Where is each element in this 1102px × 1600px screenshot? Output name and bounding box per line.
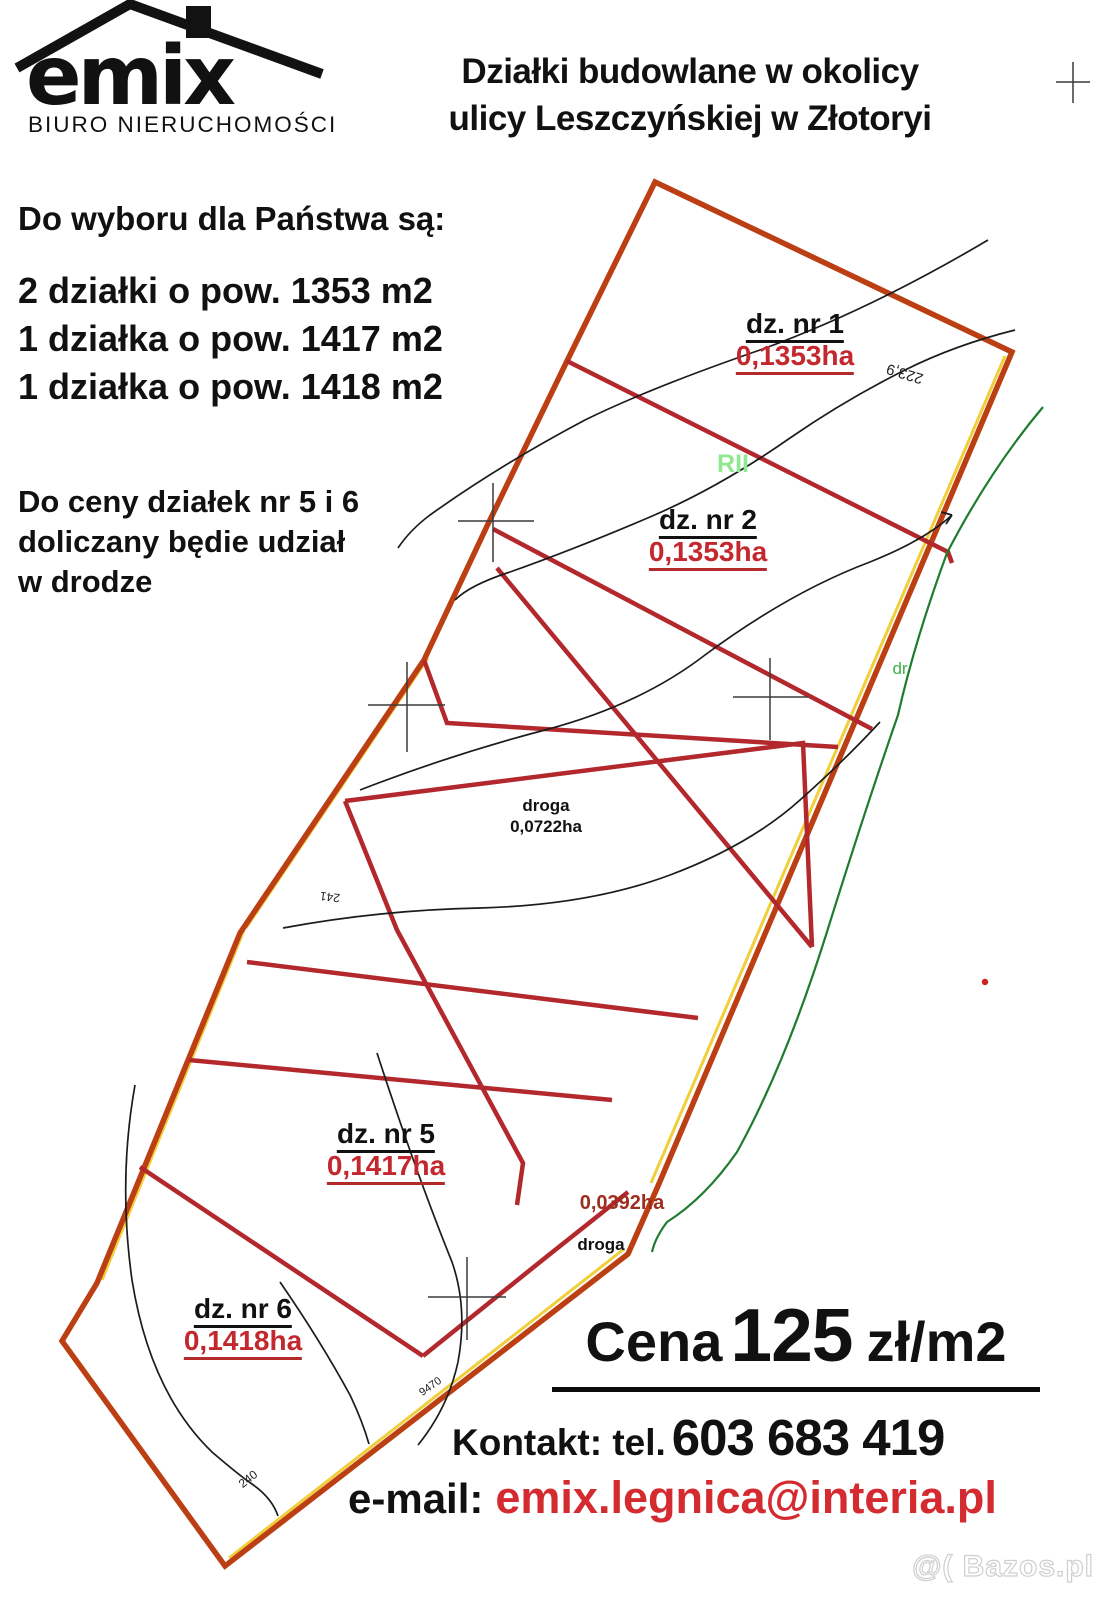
logo-subtitle: BIURO NIERUCHOMOŚCI xyxy=(28,112,337,138)
flyer-page: RII dr 223,9 241 240 9470 emix BIURO NIE… xyxy=(0,0,1102,1600)
elevation-9470-label: 9470 xyxy=(417,1375,444,1399)
page-title-line1: Działki budowlane w okolicy xyxy=(400,48,980,95)
offer-item-3: 1 działka o pow. 1418 m2 xyxy=(18,366,443,408)
parcel-6-area: 0,1418ha xyxy=(184,1325,302,1360)
road-share-note-line2: doliczany będie udział xyxy=(18,522,359,562)
elevation-241-label: 241 xyxy=(319,889,341,905)
price-line: Cena 125 zł/m2 xyxy=(552,1292,1040,1392)
road-share-note-line3: w drodze xyxy=(18,562,359,602)
parcel-1-area: 0,1353ha xyxy=(736,340,854,375)
parcel-5-id: dz. nr 5 xyxy=(337,1118,435,1153)
price-unit: zł/m2 xyxy=(867,1309,1007,1374)
road-small-name: droga xyxy=(577,1234,624,1255)
parcel-5-area: 0,1417ha xyxy=(327,1150,445,1185)
watermark: @( Bazos.pl xyxy=(912,1550,1094,1584)
road-share-note: Do ceny działek nr 5 i 6 doliczany będie… xyxy=(18,482,359,602)
road-main-label: droga 0,0722ha xyxy=(510,795,582,837)
email-prefix: e-mail: xyxy=(348,1475,483,1523)
road-small-area: 0,0392ha xyxy=(580,1192,665,1215)
parcel-5-label: dz. nr 5 0,1417ha xyxy=(327,1118,445,1182)
road-share-note-line1: Do ceny działek nr 5 i 6 xyxy=(18,482,359,522)
price-prefix: Cena xyxy=(585,1309,722,1374)
survey-cross-marks xyxy=(368,62,1090,1340)
offer-intro: Do wyboru dla Państwa są: xyxy=(18,200,445,238)
land-class-label: RII xyxy=(717,450,749,478)
red-dot-mark xyxy=(982,979,988,985)
parcel-2-label: dz. nr 2 0,1353ha xyxy=(649,504,767,568)
offer-item-2: 1 działka o pow. 1417 m2 xyxy=(18,318,443,360)
page-title: Działki budowlane w okolicy ulicy Leszcz… xyxy=(400,48,980,142)
offer-item-1: 2 działki o pow. 1353 m2 xyxy=(18,270,433,312)
parcel-6-label: dz. nr 6 0,1418ha xyxy=(184,1293,302,1357)
logo-name: emix xyxy=(26,36,232,118)
green-road-label: dr xyxy=(892,659,907,678)
page-title-line2: ulicy Leszczyńskiej w Złotoryi xyxy=(400,95,980,142)
parcel-2-id: dz. nr 2 xyxy=(659,504,757,539)
email-line: e-mail: emix.legnica@interia.pl xyxy=(348,1472,997,1524)
price-value: 125 xyxy=(730,1292,852,1378)
road-main-name: droga xyxy=(510,795,582,816)
contact-prefix: Kontakt: tel. xyxy=(452,1422,666,1464)
parcel-6-id: dz. nr 6 xyxy=(194,1293,292,1328)
contact-phone: 603 683 419 xyxy=(672,1408,945,1467)
parcel-1-id: dz. nr 1 xyxy=(746,308,844,343)
contact-line: Kontakt: tel. 603 683 419 xyxy=(452,1408,944,1467)
road-main-area: 0,0722ha xyxy=(510,816,582,837)
email-address: emix.legnica@interia.pl xyxy=(495,1472,997,1524)
parcel-2-area: 0,1353ha xyxy=(649,536,767,571)
parcel-1-label: dz. nr 1 0,1353ha xyxy=(736,308,854,372)
